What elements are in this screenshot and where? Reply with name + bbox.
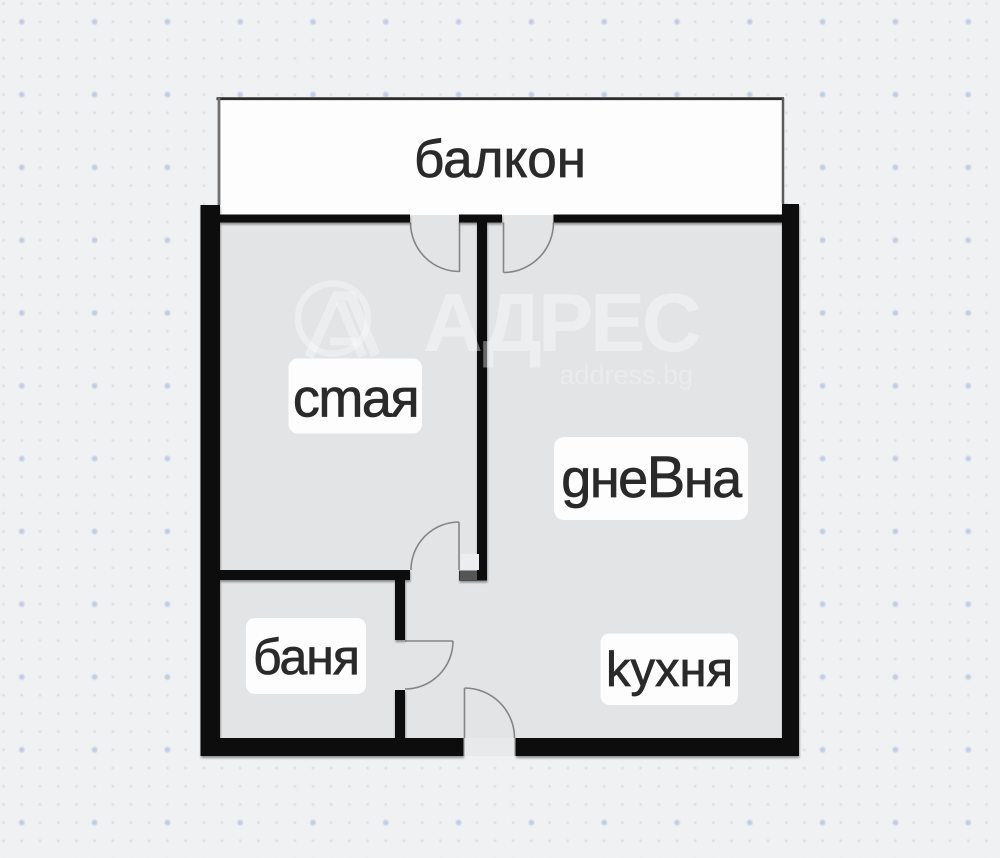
svg-text:АДРЕС: АДРЕС	[423, 276, 700, 369]
svg-text:address.bg: address.bg	[559, 360, 693, 390]
svg-text:баня: баня	[253, 629, 359, 685]
svg-text:gнеВна: gнеВна	[561, 445, 743, 510]
svg-text:cmaя: cmaя	[293, 369, 418, 429]
svg-text:балкон: балкон	[414, 130, 586, 189]
svg-text:kухня: kухня	[606, 643, 733, 697]
